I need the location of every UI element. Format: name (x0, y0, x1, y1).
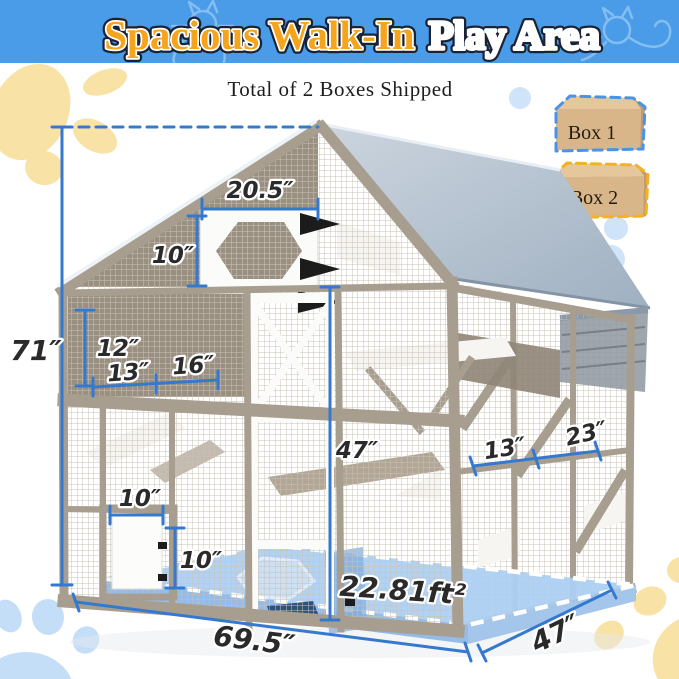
left-shelf-depth-label: 16″ (172, 352, 217, 381)
title-rest: Play Area (429, 12, 600, 58)
left-shelf-width-label: 13″ (107, 359, 152, 388)
title-accent: Spacious Walk-In (104, 12, 415, 58)
banner-title: Spacious Walk-InPlay Area Spacious Walk-… (104, 12, 600, 58)
overall-height-label: 71″ (10, 334, 62, 367)
cat-door-height-label: 10″ (180, 548, 223, 574)
front-door-height-label: 47″ (335, 438, 379, 464)
product-infographic: Spacious Walk-InPlay Area Spacious Walk-… (0, 0, 679, 679)
top-window-height-label: 10″ (152, 243, 195, 269)
box-1-label: Box 1 (568, 122, 616, 144)
shipping-note: Total of 2 Boxes Shipped (227, 77, 452, 101)
cat-door-hinge-icon (158, 574, 167, 581)
cat-door-width-label: 10″ (119, 486, 162, 512)
box-1: Box 1 (556, 96, 645, 151)
svg-text:Spacious Walk-InPlay Area: Spacious Walk-InPlay Area (104, 12, 600, 58)
left-panel-height-label: 12″ (97, 336, 140, 362)
cat-door-hinge-icon (158, 542, 167, 549)
top-window-width-label: 20.5″ (226, 178, 294, 204)
paw-print-top-left-icon (0, 51, 131, 188)
header-banner: Spacious Walk-InPlay Area Spacious Walk-… (0, 0, 679, 63)
